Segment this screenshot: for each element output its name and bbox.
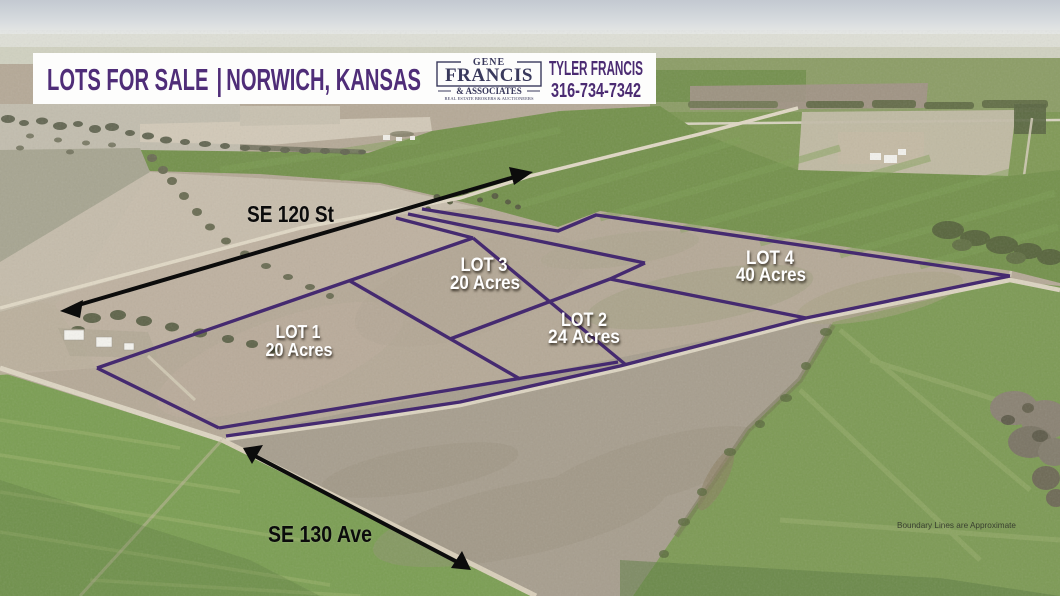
svg-text:40 Acres: 40 Acres [736, 265, 806, 286]
svg-text:20 Acres: 20 Acres [450, 273, 520, 294]
svg-text:TYLER FRANCIS: TYLER FRANCIS [549, 58, 643, 80]
svg-text:REAL ESTATE BROKERS & AUCTIONE: REAL ESTATE BROKERS & AUCTIONEERS [444, 96, 533, 101]
svg-text:24 Acres: 24 Acres [548, 327, 620, 348]
svg-text:FRANCIS: FRANCIS [445, 65, 533, 86]
svg-text:& ASSOCIATES: & ASSOCIATES [456, 86, 522, 96]
svg-text:LOT 1: LOT 1 [276, 322, 321, 342]
svg-text:SE 130 Ave: SE 130 Ave [268, 521, 372, 547]
svg-text:LOTS FOR SALE | NORWICH, KANS: LOTS FOR SALE | NORWICH, KANSAS [47, 62, 421, 97]
svg-text:20 Acres: 20 Acres [266, 340, 333, 360]
svg-text:Boundary Lines are Approximate: Boundary Lines are Approximate [897, 520, 1016, 530]
svg-text:316-734-7342: 316-734-7342 [551, 80, 641, 102]
svg-text:SE 120 St: SE 120 St [247, 201, 334, 227]
